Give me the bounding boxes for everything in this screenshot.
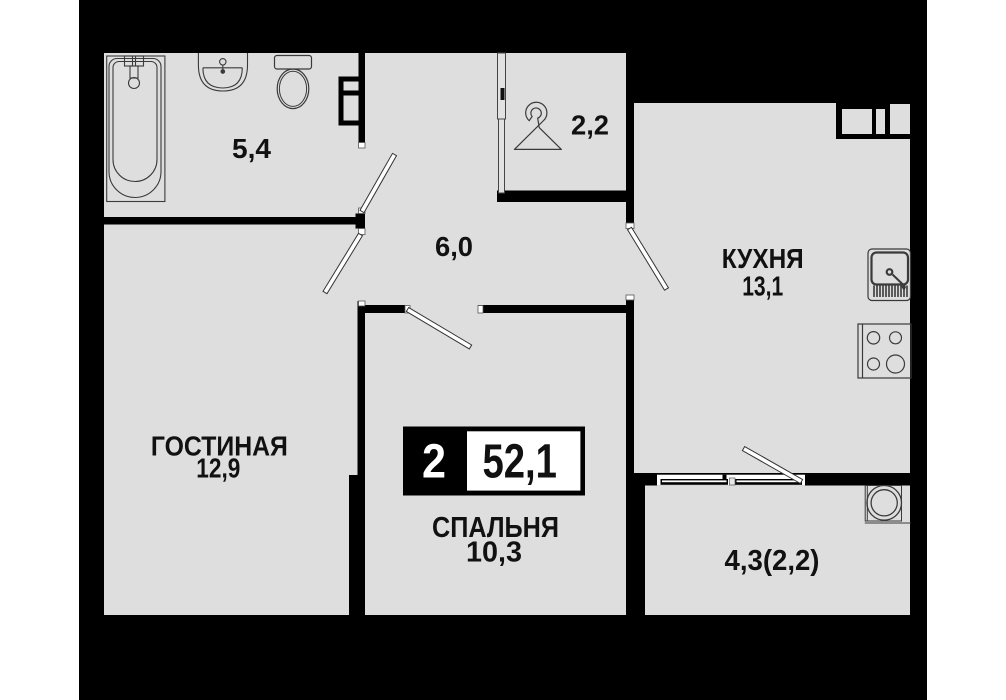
- svg-text:4,3(2,2): 4,3(2,2): [725, 545, 820, 577]
- svg-text:2: 2: [422, 436, 446, 489]
- svg-text:6,0: 6,0: [435, 231, 473, 262]
- svg-text:КУХНЯ: КУХНЯ: [722, 243, 804, 274]
- svg-text:2,2: 2,2: [571, 110, 609, 141]
- svg-text:13,1: 13,1: [742, 271, 783, 302]
- svg-text:10,3: 10,3: [466, 537, 522, 569]
- svg-text:5,4: 5,4: [232, 133, 271, 164]
- svg-text:12,9: 12,9: [196, 453, 240, 484]
- svg-text:52,1: 52,1: [482, 436, 557, 489]
